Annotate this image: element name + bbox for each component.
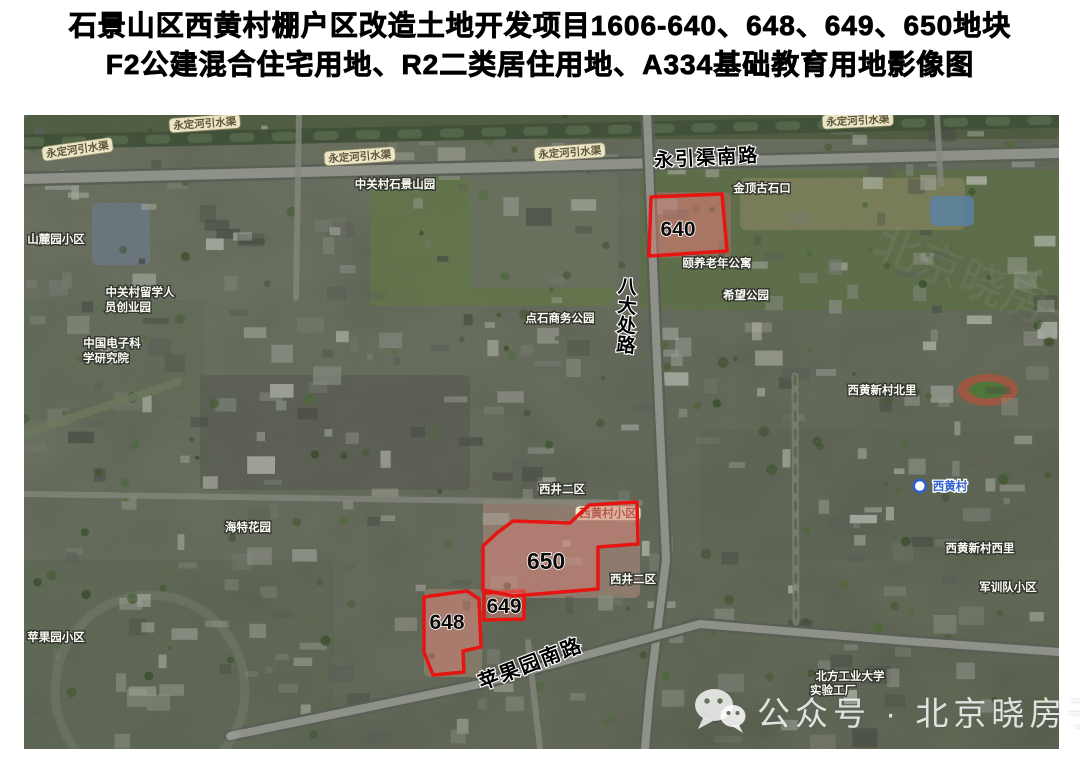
label-text: 中国电子科: [83, 336, 141, 350]
label-text: 学研究院: [83, 351, 129, 365]
parcel-number-640: 640: [660, 218, 695, 241]
label-text: 西井二区: [539, 482, 585, 496]
label-text: 金顶古石口: [732, 181, 791, 195]
metro-roundel: [914, 480, 926, 492]
map-small-label: 西黄新村西里: [946, 541, 1015, 555]
parcel-number-650: 650: [527, 548, 565, 574]
map-small-label: 中国电子科: [83, 336, 141, 350]
map-canvas: 北京晓房子永定河引水渠永定河引水渠永定河引水渠永定河引水渠永定河引水渠中关村石景…: [24, 115, 1059, 749]
satellite-map: 北京晓房子永定河引水渠永定河引水渠永定河引水渠永定河引水渠永定河引水渠中关村石景…: [24, 115, 1059, 749]
label-text: 北方工业大学: [816, 669, 885, 683]
map-small-label: 点石商务公园: [526, 311, 595, 325]
label-text: 海特花园: [225, 520, 271, 534]
road-name-char: 路: [615, 333, 637, 358]
label-text: 点石商务公园: [526, 311, 595, 325]
map-small-label: 山麓园小区: [27, 232, 85, 246]
map-small-label: 中关村石景山园: [355, 177, 436, 191]
map-small-label: 军训队小区: [979, 580, 1037, 594]
label-text: 西井二区: [610, 572, 656, 586]
parcel-number-648: 648: [429, 611, 464, 634]
map-small-label: 学研究院: [83, 351, 129, 365]
map-small-label: 中关村留学人: [106, 285, 175, 299]
map-small-label: 海特花园: [225, 520, 271, 534]
label-text: 希望公园: [722, 288, 769, 302]
parcel-number-649: 649: [486, 595, 521, 618]
label-text: 军训队小区: [979, 580, 1037, 594]
map-small-label: 西井二区: [610, 572, 656, 586]
map-small-label: 员创业园: [105, 300, 151, 314]
map-small-label: 西黄村: [914, 479, 968, 493]
label-text: 西黄新村西里: [946, 541, 1015, 555]
label-text: 苹果园小区: [27, 630, 85, 644]
page-title: 石景山区西黄村棚户区改造土地开发项目1606-640、648、649、650地块…: [0, 6, 1080, 84]
map-small-label: 西黄新村北里: [848, 383, 917, 397]
map-small-label: 金顶古石口: [732, 181, 791, 195]
label-text: 山麓园小区: [27, 232, 85, 246]
map-small-label: 北方工业大学: [816, 669, 885, 683]
label-text: 中关村石景山园: [355, 177, 436, 191]
title-line-1: 石景山区西黄村棚户区改造土地开发项目1606-640、648、649、650地块: [0, 6, 1080, 45]
map-small-label: 实验工厂: [810, 683, 856, 697]
label-text: 中关村留学人: [106, 285, 175, 299]
map-small-label: 希望公园: [722, 288, 769, 302]
label-text: 西黄村: [933, 479, 968, 493]
land-parcel-infographic: 石景山区西黄村棚户区改造土地开发项目1606-640、648、649、650地块…: [0, 0, 1080, 759]
title-line-2: F2公建混合住宅用地、R2二类居住用地、A334基础教育用地影像图: [0, 45, 1080, 84]
label-text: 实验工厂: [810, 683, 856, 697]
map-small-label: 颐养老年公寓: [683, 256, 752, 270]
label-text: 颐养老年公寓: [683, 256, 752, 270]
map-small-label: 苹果园小区: [27, 630, 85, 644]
label-text: 西黄新村北里: [848, 383, 917, 397]
label-text: 员创业园: [105, 300, 151, 314]
map-small-label: 西井二区: [539, 482, 585, 496]
